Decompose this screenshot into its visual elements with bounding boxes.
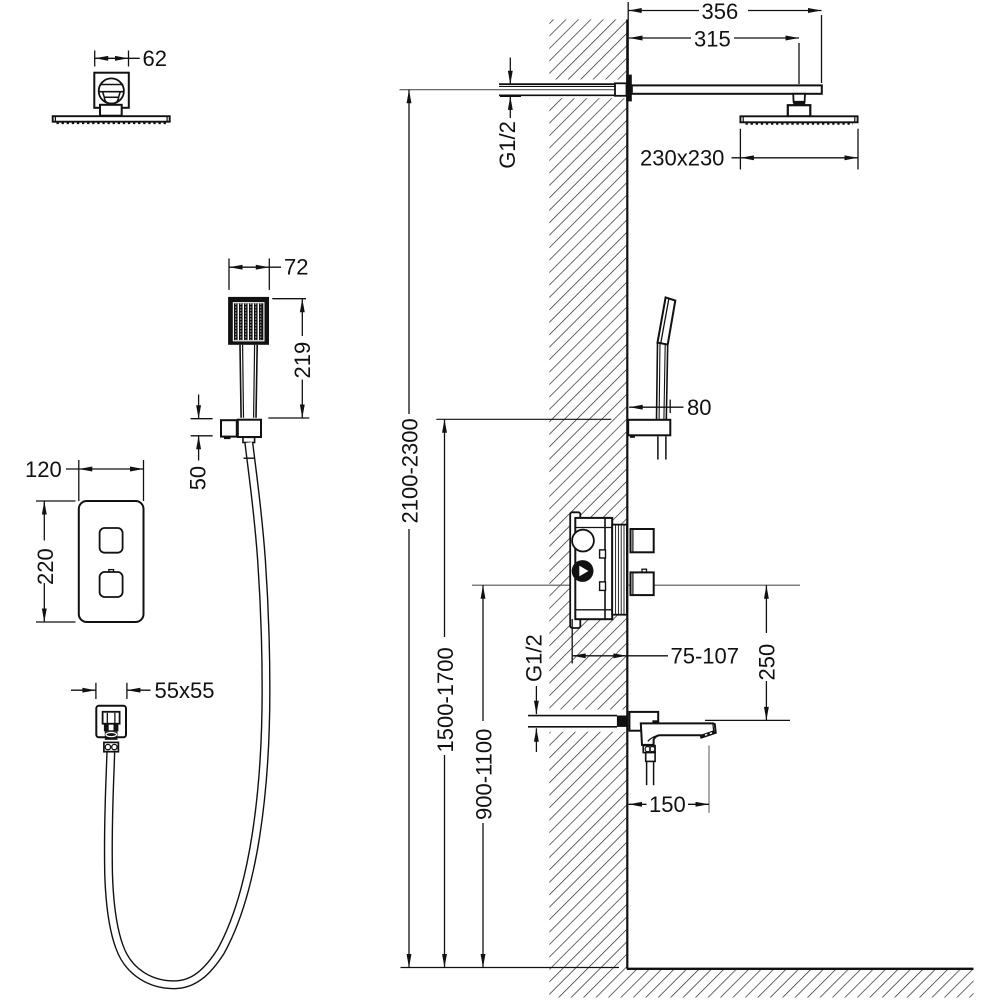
svg-text:1500-1700: 1500-1700 xyxy=(433,647,458,752)
svg-text:G1/2: G1/2 xyxy=(495,121,520,169)
svg-text:150: 150 xyxy=(649,792,686,817)
svg-text:900-1100: 900-1100 xyxy=(471,729,496,820)
svg-text:2100-2300: 2100-2300 xyxy=(397,418,422,523)
svg-text:G1/2: G1/2 xyxy=(521,634,546,682)
svg-text:219: 219 xyxy=(290,342,315,379)
svg-text:55x55: 55x55 xyxy=(155,678,215,703)
svg-text:120: 120 xyxy=(25,457,62,482)
svg-text:356: 356 xyxy=(702,0,739,24)
svg-text:315: 315 xyxy=(694,26,731,51)
svg-text:220: 220 xyxy=(33,548,58,585)
svg-text:75-107: 75-107 xyxy=(671,643,740,668)
svg-text:250: 250 xyxy=(755,644,780,681)
svg-text:50: 50 xyxy=(185,466,210,490)
svg-text:80: 80 xyxy=(687,395,711,420)
svg-text:72: 72 xyxy=(284,254,308,279)
svg-text:230x230: 230x230 xyxy=(640,145,724,170)
svg-text:62: 62 xyxy=(143,46,167,71)
